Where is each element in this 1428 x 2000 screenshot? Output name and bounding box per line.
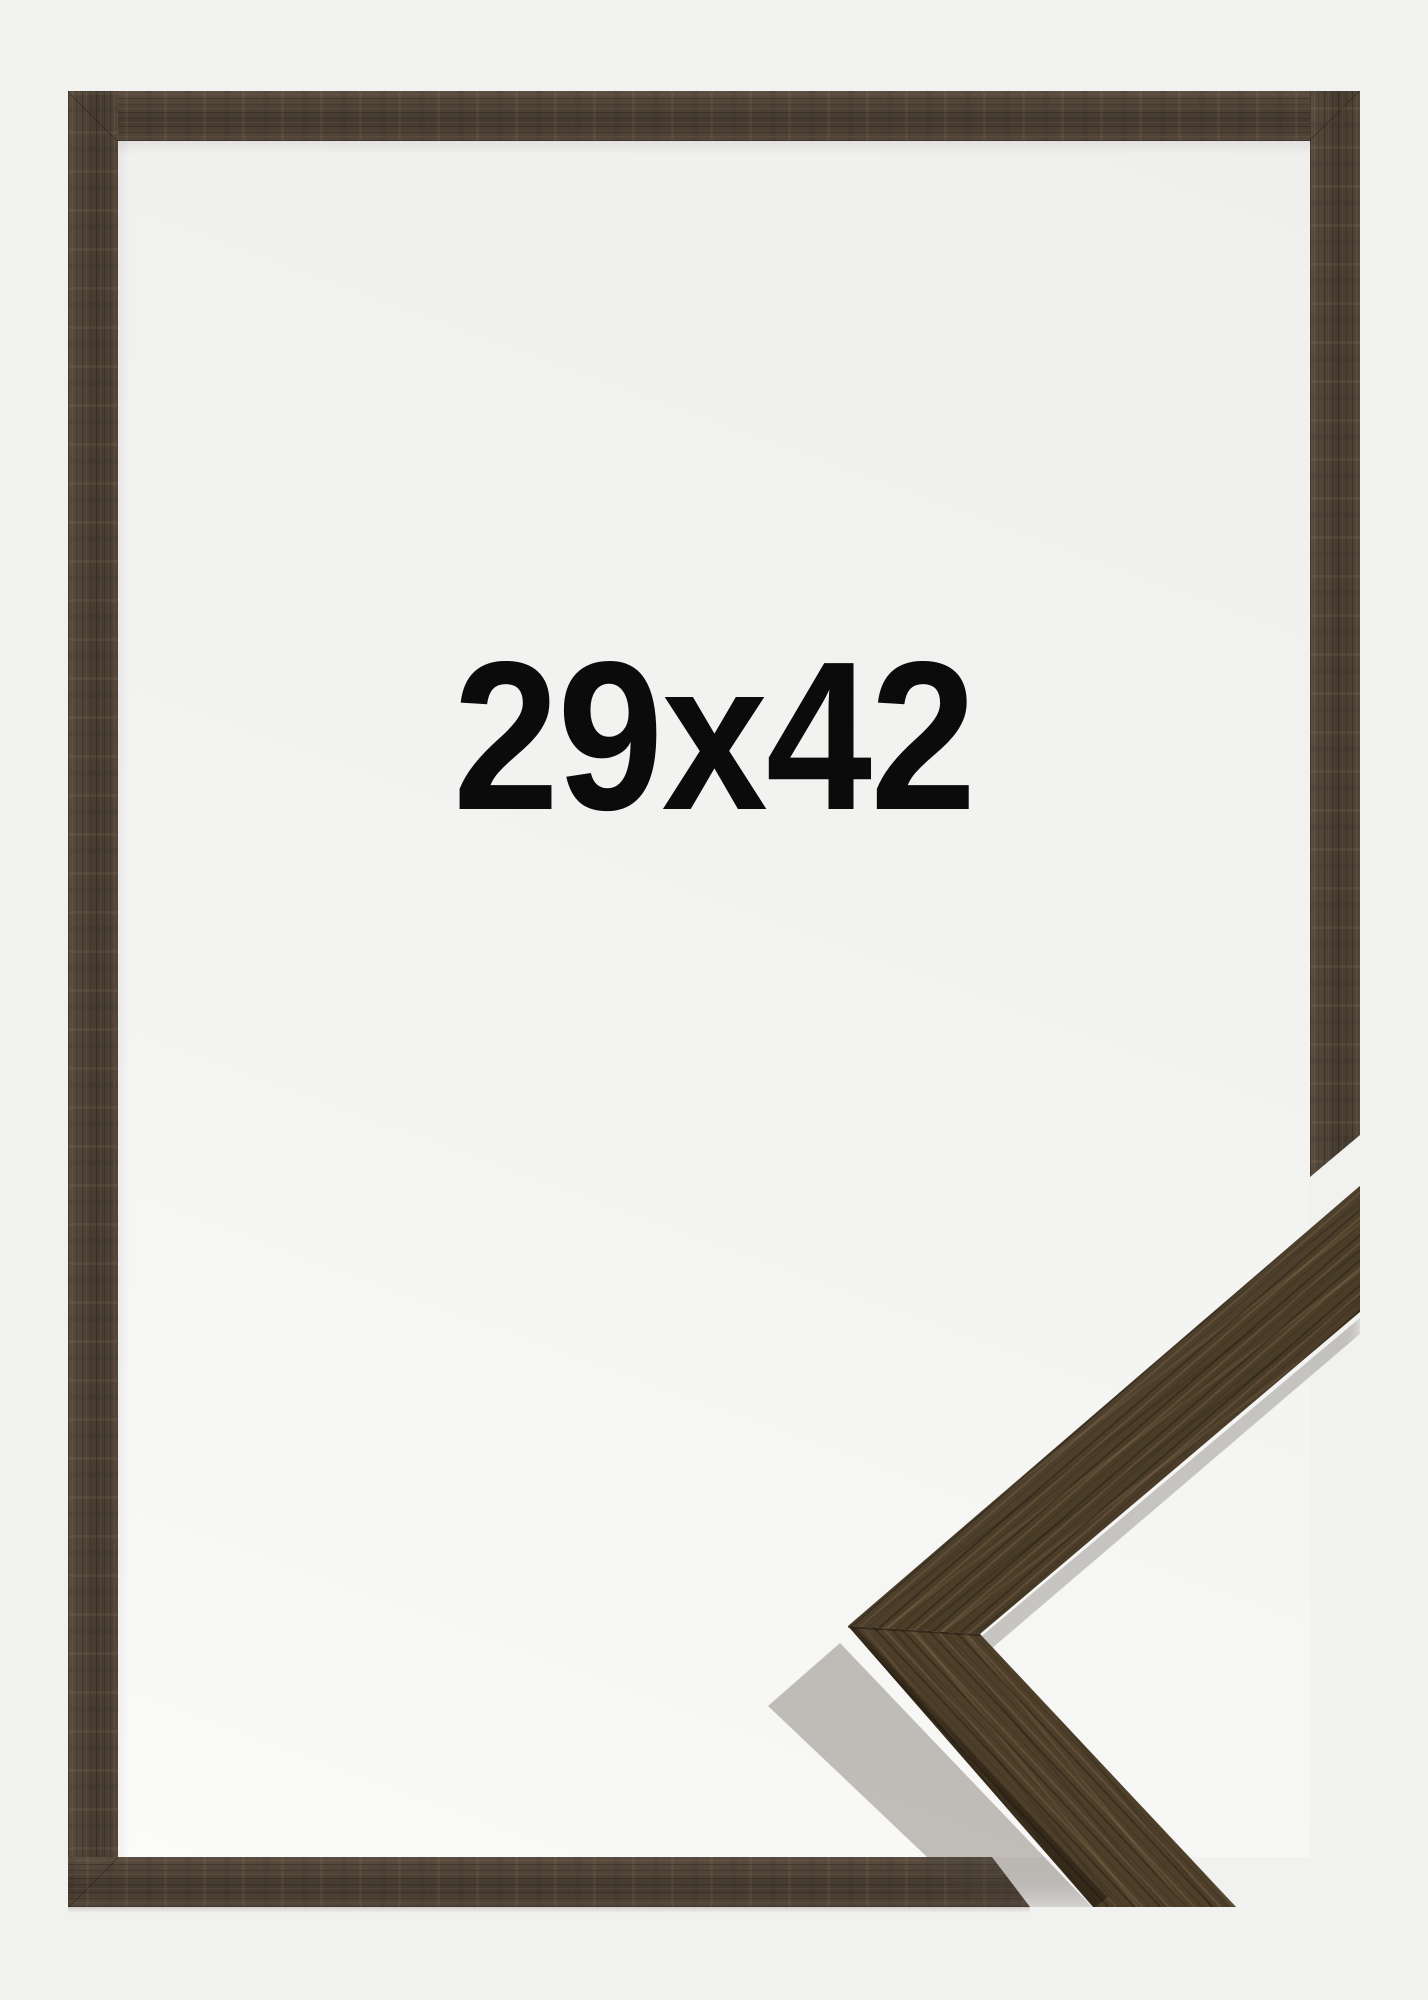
size-label-text: 29x42: [453, 630, 975, 842]
size-label: 29x42: [118, 611, 1310, 861]
frame-product-photo: 29x42: [68, 91, 1360, 1907]
frame-opening: [118, 141, 1310, 1857]
frame-border-left: [68, 91, 118, 1907]
frame-opening-inner-shadow-left: [118, 141, 130, 1857]
frame-drop-shadow: [68, 1907, 1030, 1913]
frame-border-right: [1310, 91, 1360, 1181]
frame-border-top: [68, 91, 1360, 141]
frame-opening-inner-shadow-top: [118, 141, 1310, 155]
frame-border-bottom: [68, 1857, 1068, 1907]
